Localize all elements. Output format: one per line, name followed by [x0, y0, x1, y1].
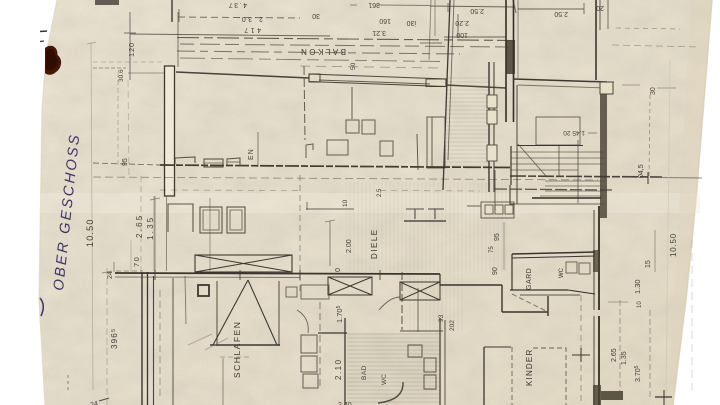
svg-text:BAD: BAD — [361, 365, 368, 380]
svg-text:75: 75 — [489, 246, 495, 253]
svg-text:2.5: 2.5 — [377, 188, 383, 197]
svg-text:361: 361 — [368, 1, 380, 8]
svg-text:90: 90 — [492, 267, 499, 275]
svg-text:2.50: 2.50 — [470, 7, 484, 14]
svg-text:GARD: GARD — [526, 268, 533, 290]
svg-text:BALKON: BALKON — [299, 47, 346, 56]
svg-text:2.65: 2.65 — [135, 214, 144, 238]
svg-text:24: 24 — [107, 271, 114, 279]
svg-text:DIELE: DIELE — [370, 228, 379, 259]
svg-text:120: 120 — [127, 42, 136, 57]
svg-text:30: 30 — [312, 12, 320, 19]
svg-text:417: 417 — [242, 26, 261, 33]
svg-text:1.35: 1.35 — [621, 351, 628, 365]
svg-text:15: 15 — [645, 260, 652, 268]
svg-text:2.10: 2.10 — [334, 358, 343, 380]
svg-text:SCHLAFEN: SCHLAFEN — [232, 321, 242, 378]
svg-text:30.6: 30.6 — [118, 69, 125, 82]
svg-text:3.21: 3.21 — [372, 29, 386, 36]
svg-text:202: 202 — [449, 320, 456, 331]
svg-text:160: 160 — [379, 17, 391, 24]
svg-text:70: 70 — [132, 256, 141, 267]
svg-text:2.30: 2.30 — [239, 15, 263, 22]
svg-text:2.00: 2.00 — [346, 239, 353, 253]
svg-text:95: 95 — [122, 158, 129, 166]
svg-text:2.50: 2.50 — [554, 10, 568, 17]
svg-text:50: 50 — [350, 62, 357, 70]
svg-text:10: 10 — [637, 301, 643, 308]
svg-text:WC: WC — [381, 374, 388, 385]
svg-text:KINDER: KINDER — [525, 349, 534, 386]
svg-text:1.35: 1.35 — [146, 216, 155, 240]
svg-text:4.37: 4.37 — [227, 1, 247, 8]
svg-text:93: 93 — [438, 314, 445, 322]
svg-text:2.65: 2.65 — [611, 348, 618, 362]
svg-text:2.20: 2.20 — [455, 19, 469, 26]
svg-text:10: 10 — [342, 199, 349, 207]
svg-text:1.30: 1.30 — [633, 279, 642, 294]
svg-text:0: 0 — [335, 268, 342, 272]
svg-text:WC: WC — [559, 267, 565, 278]
svg-text:10.50: 10.50 — [85, 218, 95, 247]
svg-text:95: 95 — [494, 233, 501, 241]
svg-text:1.45 20: 1.45 20 — [563, 129, 585, 136]
svg-text:04,5: 04,5 — [638, 164, 645, 178]
svg-text:30: 30 — [650, 87, 657, 95]
svg-text:10.50: 10.50 — [669, 233, 678, 257]
svg-text:i30: i30 — [407, 19, 416, 26]
svg-text:EN: EN — [248, 148, 255, 160]
